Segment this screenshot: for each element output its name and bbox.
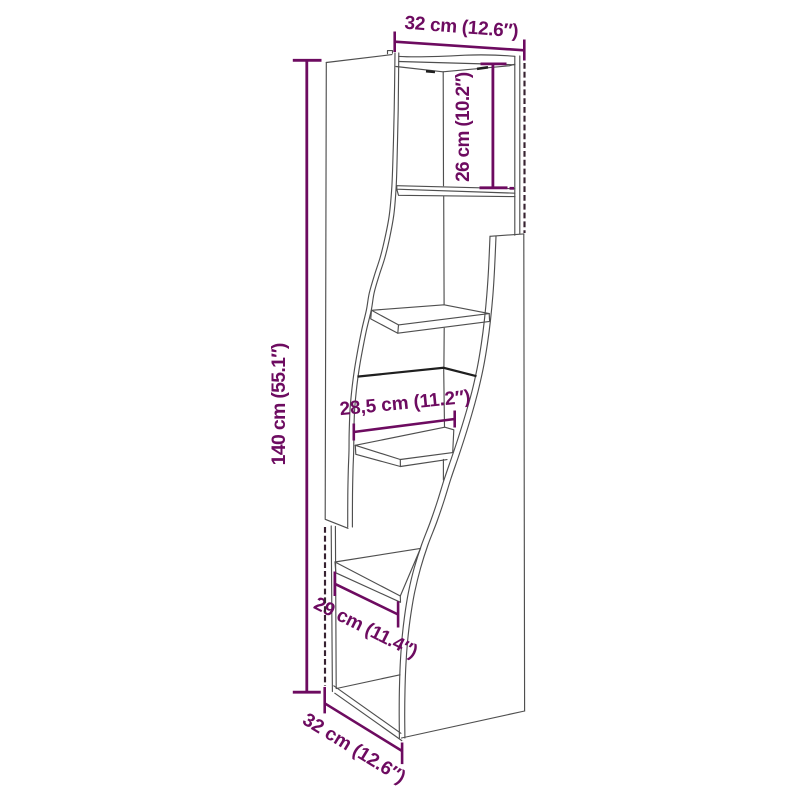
svg-text:26 cm (10.2″): 26 cm (10.2″) [453,72,474,182]
svg-text:140 cm (55.1″): 140 cm (55.1″) [268,343,290,465]
